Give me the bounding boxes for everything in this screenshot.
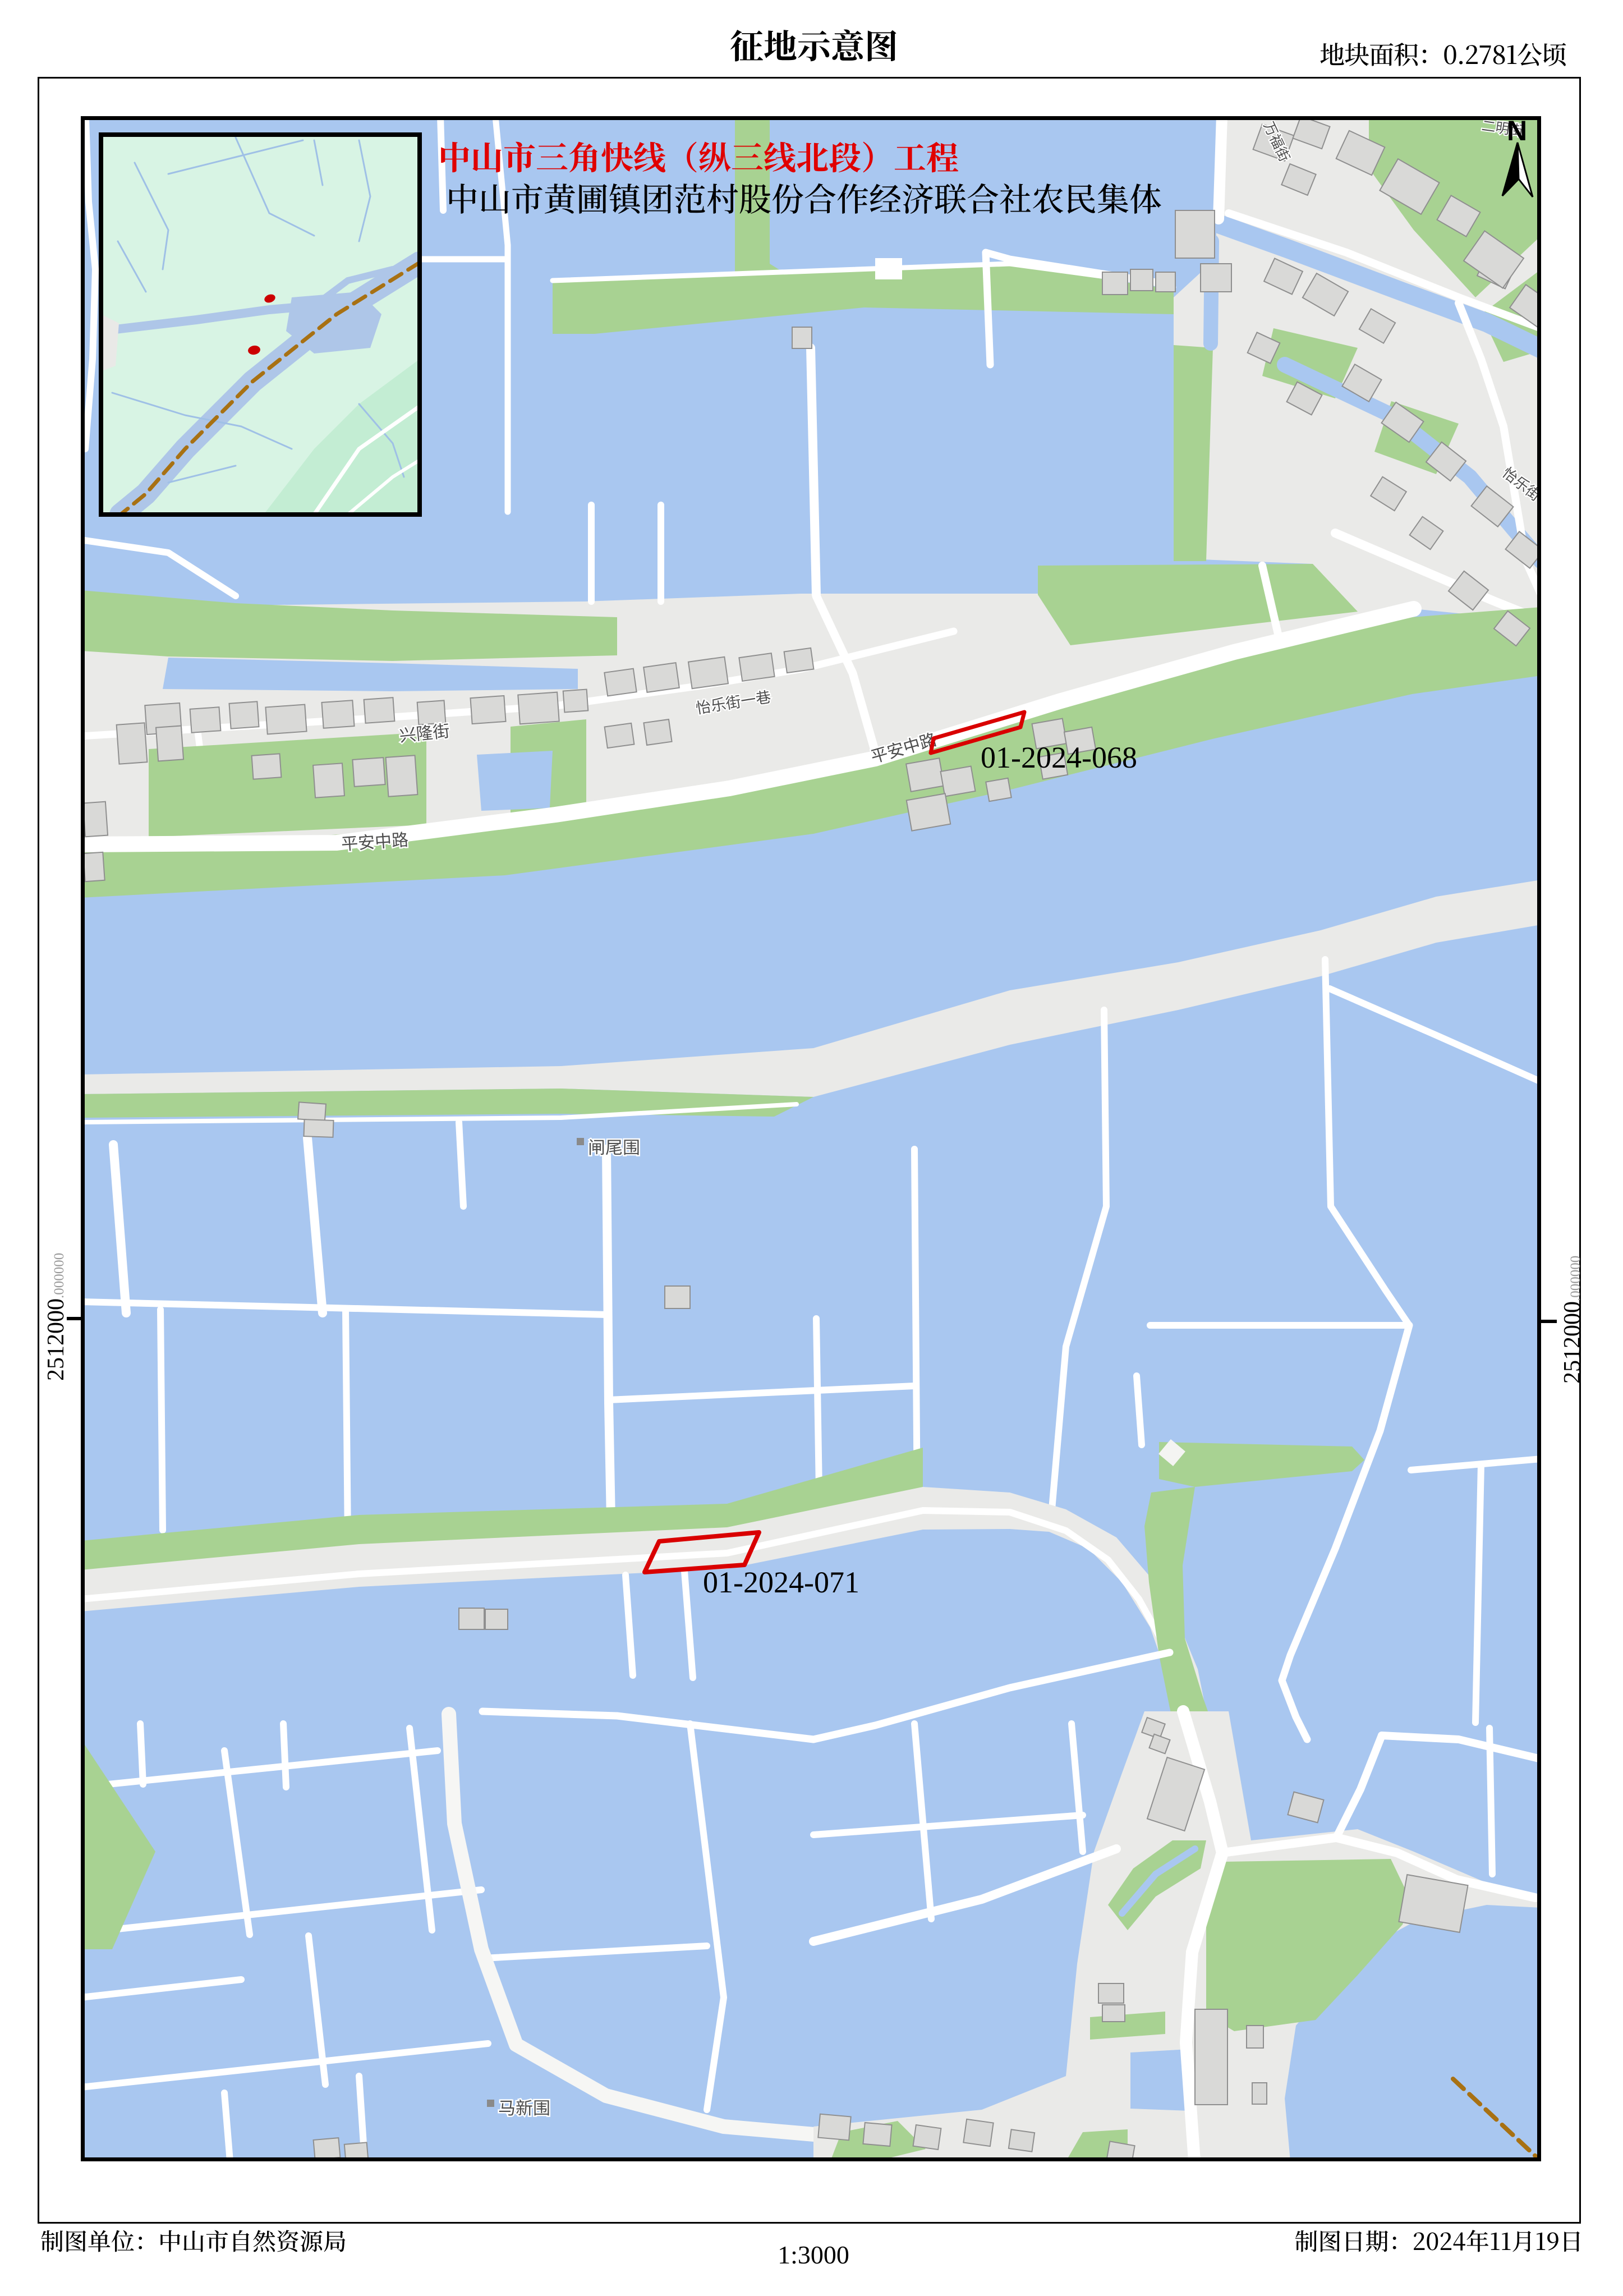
svg-text:01-2024-068: 01-2024-068	[981, 741, 1137, 774]
svg-text:01-2024-071: 01-2024-071	[703, 1565, 859, 1599]
svg-text:1:3000: 1:3000	[778, 2240, 849, 2269]
